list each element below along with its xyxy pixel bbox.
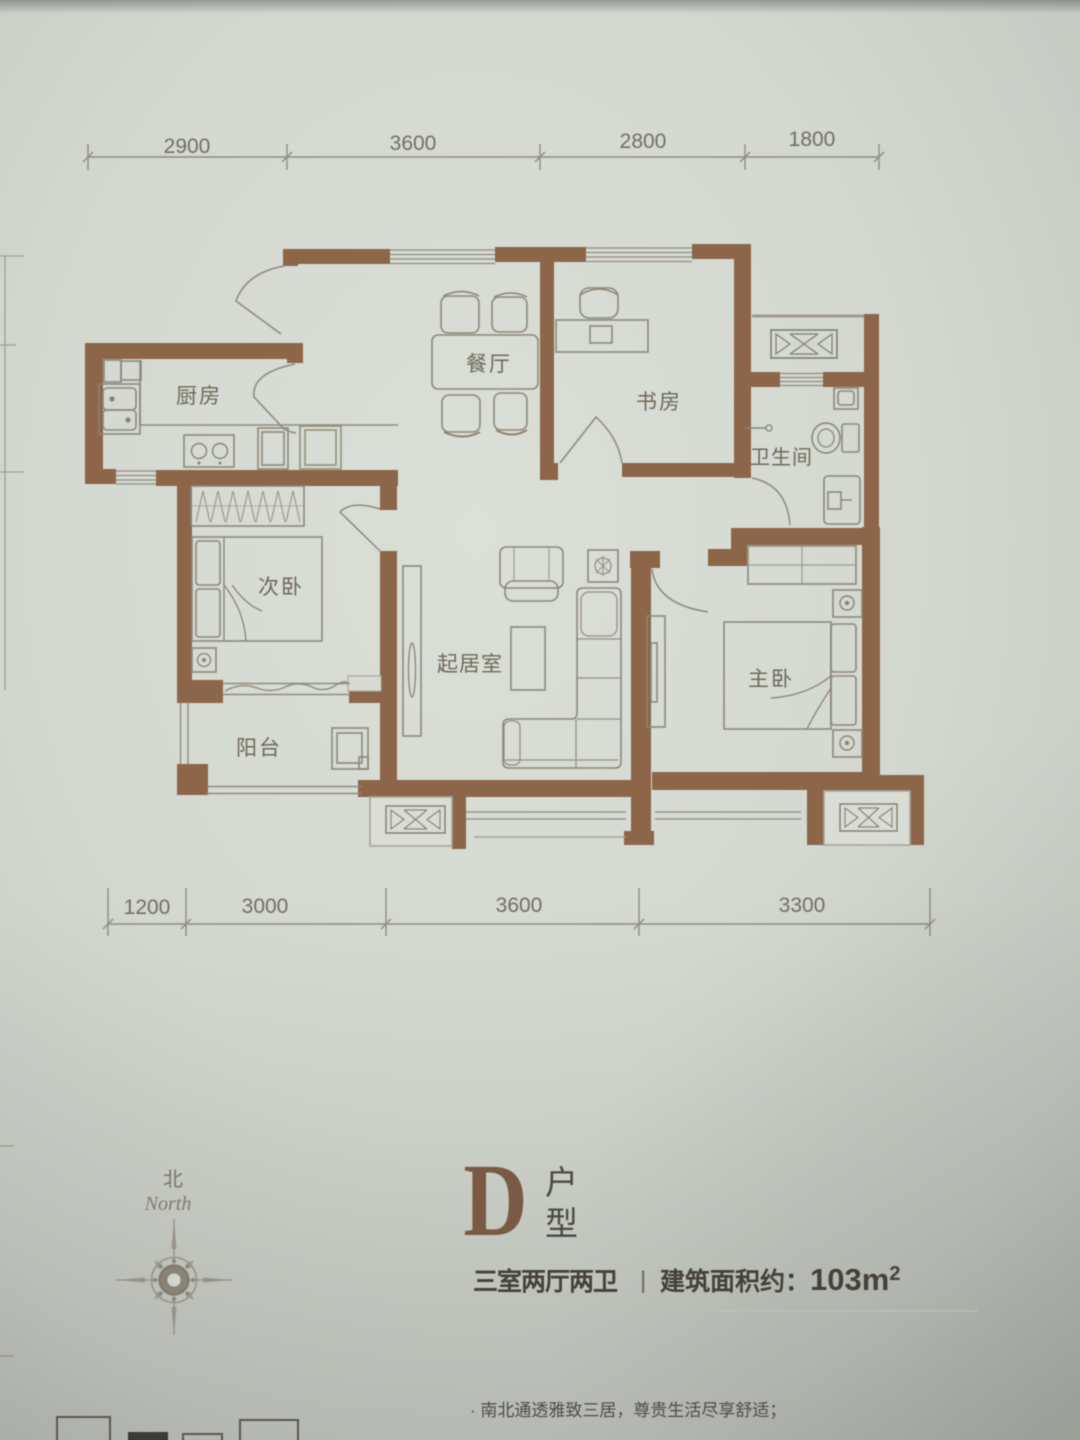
svg-text:三室两厅两卫: 三室两厅两卫 (473, 1267, 618, 1296)
svg-text:户: 户 (545, 1164, 578, 1201)
svg-text:1200: 1200 (124, 896, 171, 919)
svg-text:2900: 2900 (164, 135, 211, 158)
svg-text:起居室: 起居室 (437, 653, 503, 676)
svg-text:3300: 3300 (779, 894, 826, 917)
svg-text:型: 型 (545, 1205, 578, 1242)
svg-text:3600: 3600 (496, 894, 543, 917)
svg-text:餐厅: 餐厅 (466, 353, 512, 376)
svg-text:D: D (463, 1143, 527, 1258)
svg-text:厨房: 厨房 (176, 385, 222, 408)
svg-text:North: North (144, 1193, 192, 1215)
svg-text:3000: 3000 (242, 895, 289, 918)
svg-text:主卧: 主卧 (748, 668, 794, 691)
svg-text:卫生间: 卫生间 (750, 446, 813, 469)
svg-text:书房: 书房 (636, 391, 682, 414)
svg-text:· 南北通透雅致三居，尊贵生活尽享舒适；: · 南北通透雅致三居，尊贵生活尽享舒适； (470, 1401, 786, 1420)
svg-text:建筑面积约：103m2: 建筑面积约：103m2 (660, 1262, 900, 1297)
svg-text:北: 北 (163, 1168, 183, 1191)
svg-text:1800: 1800 (789, 128, 836, 151)
svg-text:次卧: 次卧 (258, 576, 304, 599)
svg-text:2800: 2800 (620, 130, 667, 153)
svg-text:阳台: 阳台 (236, 737, 282, 760)
svg-text:|: | (640, 1267, 646, 1294)
svg-text:3600: 3600 (390, 132, 437, 155)
